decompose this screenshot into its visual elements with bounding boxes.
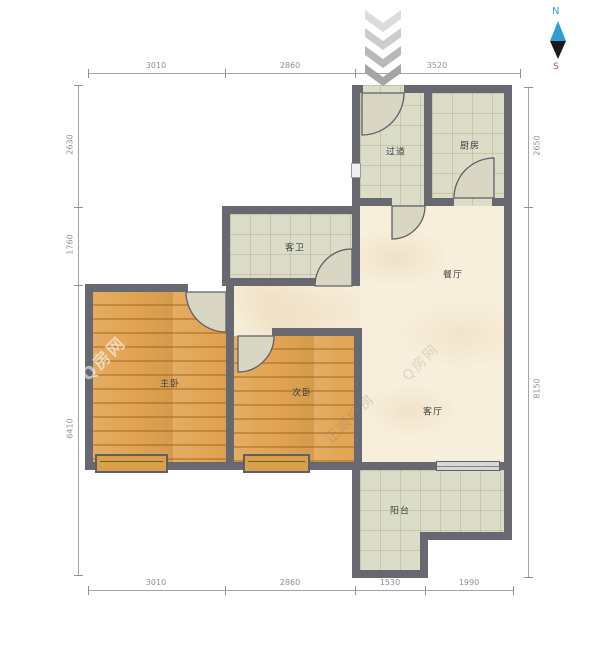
dimension-top-2: 2860 [265, 61, 315, 70]
dimension-bottom-4: 1990 [444, 578, 494, 587]
dimension-line-left [78, 85, 79, 575]
dimension-right-1: 2650 [533, 121, 542, 171]
room-label-dining-room: 餐厅 [443, 268, 463, 281]
room-label-living-room: 客厅 [423, 405, 443, 418]
dimension-line-top [88, 73, 520, 74]
room-label-kitchen: 厨房 [460, 139, 480, 152]
dimension-tick [425, 586, 426, 595]
dimension-tick [74, 85, 83, 86]
dimension-left-1: 2630 [66, 120, 75, 170]
dimension-bottom-3: 1530 [365, 578, 415, 587]
compass-south-needle [550, 41, 566, 59]
room-label-guest-bathroom: 客卫 [285, 241, 305, 254]
balcony-window [436, 461, 500, 471]
second-bedroom-window [243, 454, 310, 473]
dimension-left-2: 1760 [66, 220, 75, 270]
room-label-master-bedroom: 主卧 [160, 377, 180, 390]
wall-segment [504, 85, 512, 470]
compass-needle-icon [547, 19, 569, 61]
wall-segment [424, 198, 454, 206]
hallway-door-arc [392, 206, 425, 239]
dimension-tick [524, 207, 533, 208]
dimension-tick [524, 577, 533, 578]
entry-door-arc [362, 93, 404, 135]
dimension-right-2: 8150 [533, 364, 542, 414]
wall-segment [352, 198, 392, 206]
dimension-tick [74, 285, 83, 286]
dimension-tick [355, 586, 356, 595]
wall-segment [424, 93, 432, 206]
wall-segment [352, 570, 428, 578]
kitchen-door-arc [454, 158, 494, 198]
room-label-balcony: 阳台 [390, 504, 410, 517]
dimension-tick [74, 207, 83, 208]
second-bedroom-door-arc [238, 336, 274, 372]
wall-segment [272, 328, 362, 336]
master-bedroom-door-arc [186, 292, 226, 332]
dimension-tick [520, 69, 521, 78]
compass-north-label: N [552, 6, 559, 17]
floor-plan: 过道 厨房 客卫 餐厅 主卧 次卧 客厅 阳台 Q房网 正顺好房 Q房网 301… [0, 0, 600, 668]
dimension-tick [355, 69, 356, 78]
dimension-tick [513, 586, 514, 595]
dimension-top-3: 3520 [412, 61, 462, 70]
compass-north-needle [550, 21, 566, 41]
wall-segment [352, 470, 360, 578]
dimension-tick [74, 575, 83, 576]
dimension-tick [524, 87, 533, 88]
bathroom-door-arc [315, 249, 352, 286]
wall-segment [492, 198, 504, 206]
wall-segment [352, 214, 360, 286]
wall-segment [222, 206, 360, 214]
wall-segment [222, 206, 230, 286]
wall-segment [226, 284, 234, 470]
room-label-second-bedroom: 次卧 [292, 386, 312, 399]
dimension-tick [225, 586, 226, 595]
hallway-window [351, 163, 361, 178]
dimension-line-right [528, 87, 529, 577]
dimension-tick [88, 69, 89, 78]
master-bedroom-window [95, 454, 168, 473]
dimension-tick [88, 586, 89, 595]
wall-segment [404, 85, 512, 93]
dimension-bottom-2: 2860 [265, 578, 315, 587]
wall-segment [420, 532, 512, 540]
wall-segment [352, 85, 360, 163]
dimension-top-1: 3010 [131, 61, 181, 70]
dimension-tick [225, 69, 226, 78]
dimension-line-bottom [88, 590, 513, 591]
wall-segment [222, 278, 315, 286]
wall-segment [85, 284, 188, 292]
wall-segment [504, 470, 512, 540]
room-label-hallway: 过道 [386, 145, 406, 158]
dimension-left-3: 6410 [66, 404, 75, 454]
compass-south-label: S [553, 62, 559, 72]
dimension-bottom-1: 3010 [131, 578, 181, 587]
